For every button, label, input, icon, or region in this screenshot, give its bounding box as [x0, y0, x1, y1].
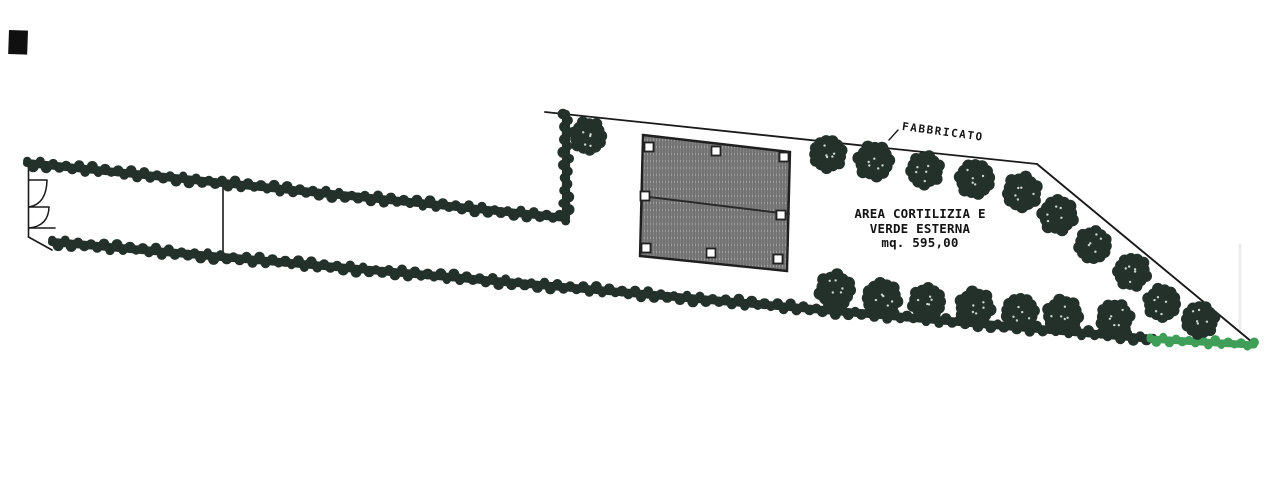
tree	[1181, 301, 1220, 340]
tree	[954, 159, 995, 200]
tree	[1036, 194, 1079, 236]
tree	[809, 135, 847, 174]
tree	[1002, 171, 1043, 214]
tree	[905, 150, 945, 190]
hedge-left-vertical	[557, 109, 574, 220]
tree	[1142, 283, 1181, 323]
tree	[852, 141, 895, 183]
area-label: AREA CORTILIZIA E VERDE ESTERNA mq. 595,…	[842, 207, 998, 251]
tree	[568, 116, 607, 155]
plan-canvas	[0, 0, 1280, 480]
tree	[814, 268, 856, 310]
tree	[1073, 225, 1112, 264]
site-plan: FABBRICATO AREA CORTILIZIA E VERDE ESTER…	[0, 0, 1280, 480]
area-label-line3: mq. 595,00	[842, 236, 998, 251]
area-label-line1: AREA CORTILIZIA E	[842, 207, 998, 222]
tree	[1112, 253, 1152, 292]
hedge-bottom	[48, 236, 1157, 346]
area-label-line2: VERDE ESTERNA	[842, 222, 998, 237]
hedge-top-strip	[23, 157, 570, 226]
building-footprint	[640, 135, 790, 271]
